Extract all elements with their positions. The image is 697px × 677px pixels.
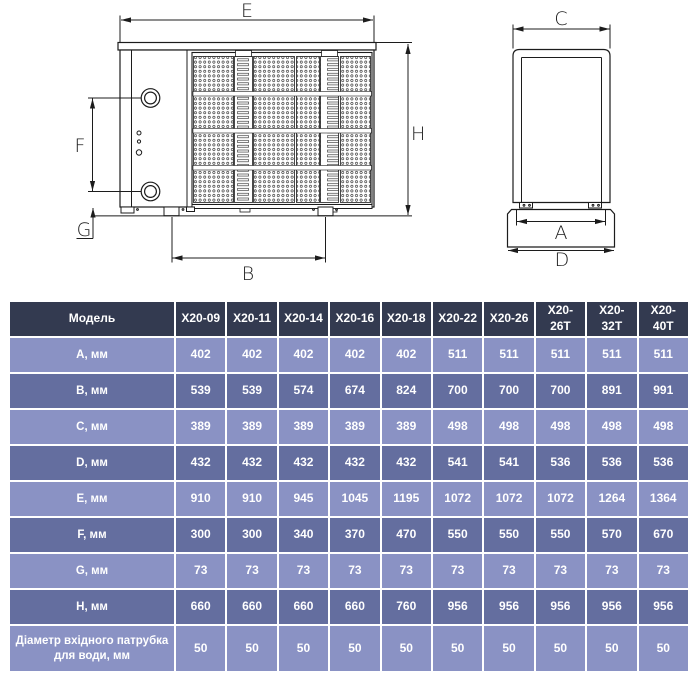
value-cell: 432: [175, 445, 226, 481]
table-header-x20-32t: X20-32T: [586, 301, 637, 337]
row-label-cell: F, мм: [9, 517, 175, 553]
value-cell: 73: [586, 553, 637, 589]
value-cell: 73: [535, 553, 586, 589]
row-label-cell: H, мм: [9, 589, 175, 625]
value-cell: 539: [175, 373, 226, 409]
side-feet: [520, 203, 602, 209]
value-cell: 550: [535, 517, 586, 553]
value-cell: 50: [586, 625, 637, 672]
value-cell: 1195: [381, 481, 432, 517]
value-cell: 50: [226, 625, 277, 672]
value-cell: 956: [432, 589, 483, 625]
dim-label-d: D: [555, 249, 570, 271]
value-cell: 402: [329, 337, 380, 373]
dim-label-c: C: [554, 8, 567, 30]
table-header-x20-26: X20-26: [483, 301, 534, 337]
value-cell: 50: [638, 625, 689, 672]
value-cell: 73: [175, 553, 226, 589]
row-label-cell: B, мм: [9, 373, 175, 409]
value-cell: 1072: [535, 481, 586, 517]
value-cell: 432: [329, 445, 380, 481]
dim-label-a: A: [555, 222, 568, 244]
value-cell: 511: [586, 337, 637, 373]
table-row: D, мм432432432432432541541536536536: [9, 445, 689, 481]
value-cell: 402: [226, 337, 277, 373]
value-cell: 910: [226, 481, 277, 517]
value-cell: 991: [638, 373, 689, 409]
value-cell: 402: [175, 337, 226, 373]
value-cell: 389: [329, 409, 380, 445]
value-cell: 956: [483, 589, 534, 625]
table-header-x20-16: X20-16: [329, 301, 380, 337]
value-cell: 1045: [329, 481, 380, 517]
air-grille: [192, 51, 372, 213]
spec-sheet-page: E H F G B: [0, 0, 697, 677]
value-cell: 1072: [432, 481, 483, 517]
value-cell: 50: [535, 625, 586, 672]
spec-table: МодельX20-09X20-11X20-14X20-16X20-18X20-…: [8, 300, 690, 673]
value-cell: 50: [329, 625, 380, 672]
value-cell: 402: [381, 337, 432, 373]
value-cell: 389: [226, 409, 277, 445]
table-header-model: Модель: [9, 301, 175, 337]
row-label-cell: C, мм: [9, 409, 175, 445]
value-cell: 340: [278, 517, 329, 553]
value-cell: 498: [535, 409, 586, 445]
value-cell: 389: [278, 409, 329, 445]
value-cell: 660: [175, 589, 226, 625]
value-cell: 498: [638, 409, 689, 445]
table-row: G, мм73737373737373737373: [9, 553, 689, 589]
value-cell: 700: [535, 373, 586, 409]
dim-label-e: E: [241, 0, 253, 22]
value-cell: 945: [278, 481, 329, 517]
value-cell: 674: [329, 373, 380, 409]
value-cell: 660: [278, 589, 329, 625]
value-cell: 432: [278, 445, 329, 481]
row-label-cell: A, мм: [9, 337, 175, 373]
table-row: F, мм300300340370470550550550570670: [9, 517, 689, 553]
value-cell: 824: [381, 373, 432, 409]
dim-label-h: H: [411, 123, 425, 145]
value-cell: 956: [535, 589, 586, 625]
value-cell: 891: [586, 373, 637, 409]
side-body: [513, 50, 610, 203]
value-cell: 536: [586, 445, 637, 481]
value-cell: 73: [226, 553, 277, 589]
dim-label-b: B: [242, 263, 254, 285]
value-cell: 432: [226, 445, 277, 481]
value-cell: 1364: [638, 481, 689, 517]
value-cell: 550: [432, 517, 483, 553]
value-cell: 498: [586, 409, 637, 445]
value-cell: 50: [483, 625, 534, 672]
value-cell: 760: [381, 589, 432, 625]
value-cell: 541: [483, 445, 534, 481]
value-cell: 574: [278, 373, 329, 409]
value-cell: 50: [175, 625, 226, 672]
table-row: H, мм660660660660760956956956956956: [9, 589, 689, 625]
value-cell: 73: [483, 553, 534, 589]
value-cell: 910: [175, 481, 226, 517]
value-cell: 498: [483, 409, 534, 445]
value-cell: 660: [226, 589, 277, 625]
value-cell: 498: [432, 409, 483, 445]
value-cell: 956: [586, 589, 637, 625]
value-cell: 700: [483, 373, 534, 409]
value-cell: 700: [432, 373, 483, 409]
value-cell: 1264: [586, 481, 637, 517]
value-cell: 73: [432, 553, 483, 589]
value-cell: 300: [226, 517, 277, 553]
value-cell: 541: [432, 445, 483, 481]
dim-label-g: G: [77, 219, 92, 241]
value-cell: 539: [226, 373, 277, 409]
value-cell: 370: [329, 517, 380, 553]
value-cell: 660: [329, 589, 380, 625]
table-row: E, мм91091094510451195107210721072126413…: [9, 481, 689, 517]
value-cell: 511: [638, 337, 689, 373]
grille-bottom-rail: [192, 205, 372, 209]
value-cell: 511: [432, 337, 483, 373]
table-header-x20-14: X20-14: [278, 301, 329, 337]
value-cell: 389: [381, 409, 432, 445]
value-cell: 670: [638, 517, 689, 553]
value-cell: 73: [278, 553, 329, 589]
table-header-x20-22: X20-22: [432, 301, 483, 337]
table-header-x20-40t: X20-40T: [638, 301, 689, 337]
table-header-x20-11: X20-11: [226, 301, 277, 337]
value-cell: 73: [329, 553, 380, 589]
table-header-row: МодельX20-09X20-11X20-14X20-16X20-18X20-…: [9, 301, 689, 337]
value-cell: 536: [638, 445, 689, 481]
value-cell: 1072: [483, 481, 534, 517]
value-cell: 50: [432, 625, 483, 672]
value-cell: 50: [381, 625, 432, 672]
value-cell: 300: [175, 517, 226, 553]
table-header-x20-18: X20-18: [381, 301, 432, 337]
dimension-drawing: E H F G B: [0, 0, 697, 295]
table-row: B, мм539539574674824700700700891991: [9, 373, 689, 409]
value-cell: 550: [483, 517, 534, 553]
value-cell: 432: [381, 445, 432, 481]
table-row: Діаметр вхідного патрубка для води, мм50…: [9, 625, 689, 672]
value-cell: 511: [535, 337, 586, 373]
row-label-cell: D, мм: [9, 445, 175, 481]
value-cell: 511: [483, 337, 534, 373]
value-cell: 570: [586, 517, 637, 553]
table-header-x20-09: X20-09: [175, 301, 226, 337]
table-row: C, мм389389389389389498498498498498: [9, 409, 689, 445]
row-label-cell: G, мм: [9, 553, 175, 589]
front-view: [77, 16, 413, 263]
value-cell: 470: [381, 517, 432, 553]
table-header-x20-26t: X20-26T: [535, 301, 586, 337]
value-cell: 536: [535, 445, 586, 481]
value-cell: 73: [638, 553, 689, 589]
table-row: A, мм402402402402402511511511511511: [9, 337, 689, 373]
side-view: [508, 25, 615, 251]
row-label-cell: E, мм: [9, 481, 175, 517]
value-cell: 956: [638, 589, 689, 625]
value-cell: 50: [278, 625, 329, 672]
row-label-cell: Діаметр вхідного патрубка для води, мм: [9, 625, 175, 672]
dim-label-f: F: [75, 135, 86, 157]
front-top-cap: [118, 43, 376, 51]
value-cell: 389: [175, 409, 226, 445]
value-cell: 402: [278, 337, 329, 373]
value-cell: 73: [381, 553, 432, 589]
